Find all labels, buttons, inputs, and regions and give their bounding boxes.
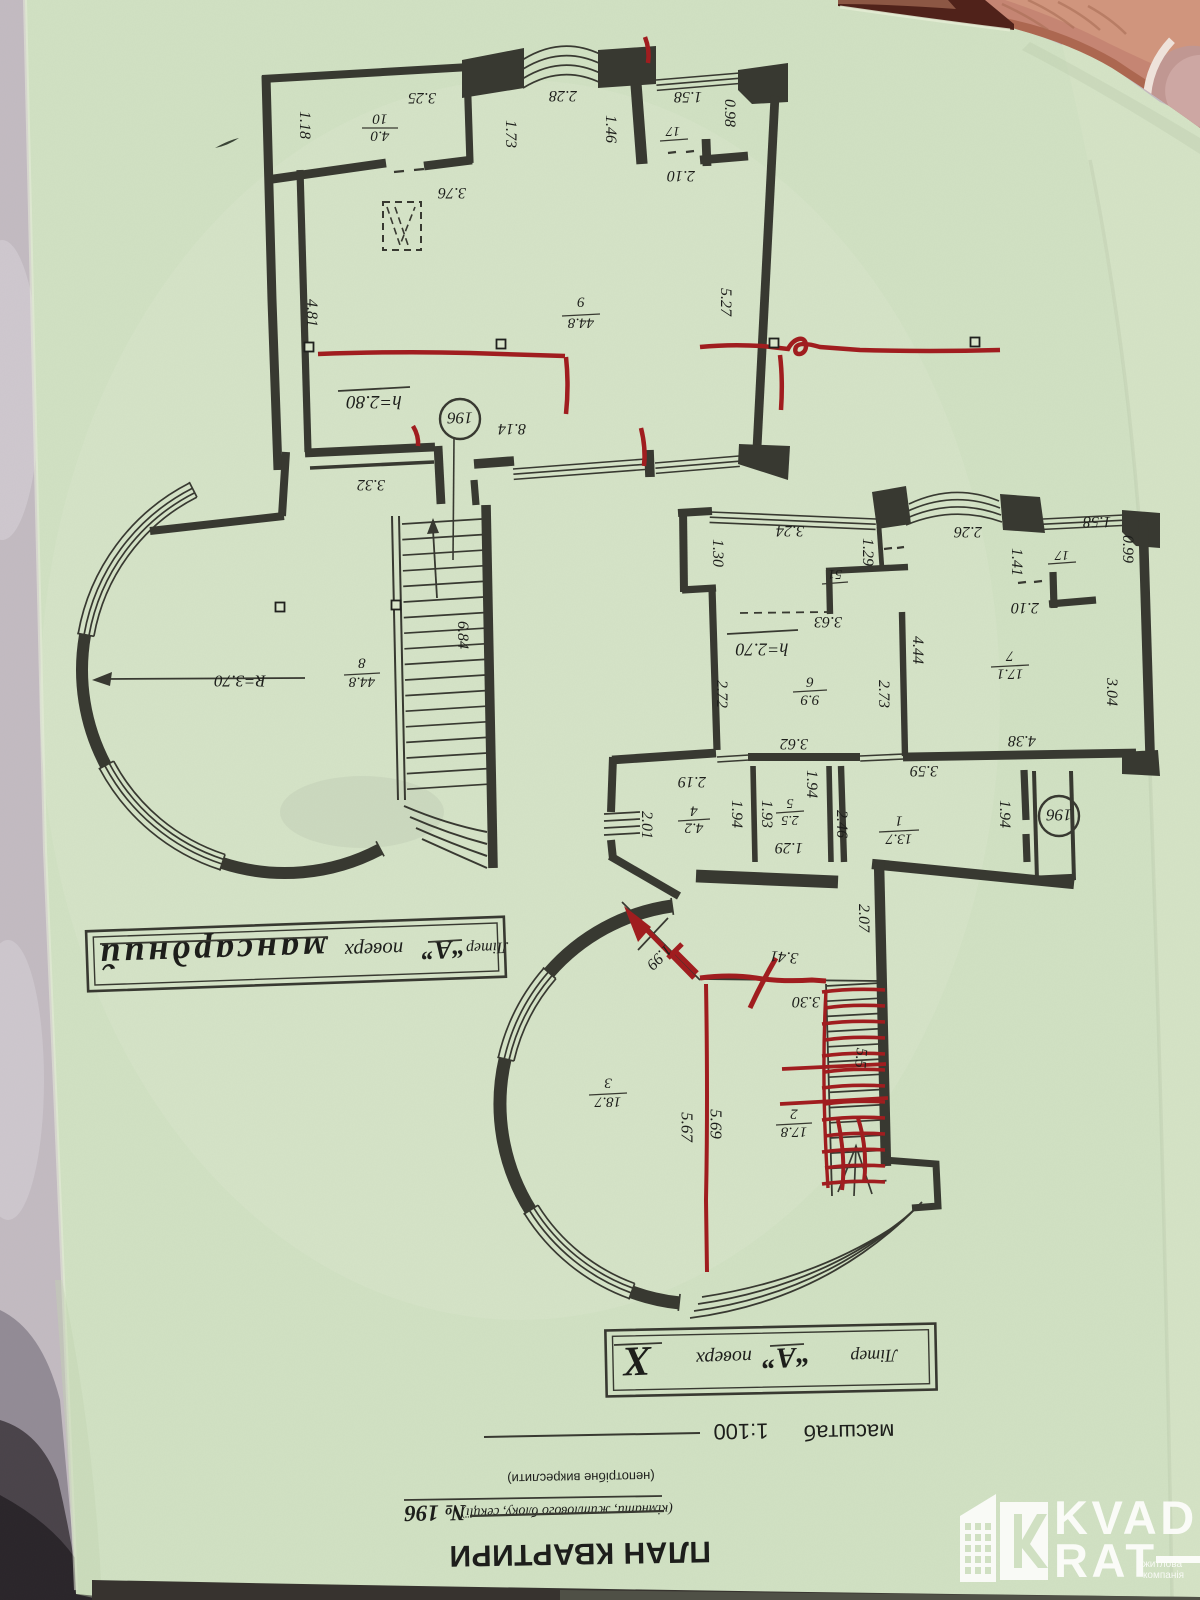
svg-text:17: 17 (665, 123, 680, 138)
svg-text:поверх: поверх (695, 1346, 752, 1370)
svg-text:17: 17 (1054, 547, 1069, 562)
svg-text:5.69: 5.69 (707, 1109, 726, 1139)
svg-text:1.58: 1.58 (674, 88, 702, 105)
svg-text:h=2.80: h=2.80 (346, 391, 402, 412)
svg-text:8.14: 8.14 (498, 420, 526, 437)
svg-text:№ 196: № 196 (404, 1500, 467, 1526)
svg-text:4.0: 4.0 (370, 127, 389, 143)
svg-text:2.5: 2.5 (781, 812, 799, 827)
svg-text:3.63: 3.63 (814, 613, 843, 630)
svg-text:Літер: Літер (466, 938, 510, 956)
svg-text:(непотрібне викреслити): (непотрібне викреслити) (507, 1469, 655, 1487)
svg-text:1: 1 (895, 812, 903, 828)
svg-text:1.18: 1.18 (296, 111, 313, 139)
svg-text:9: 9 (577, 293, 585, 309)
svg-text:44.8: 44.8 (567, 314, 594, 330)
svg-text:6: 6 (806, 673, 814, 689)
svg-text:1.94: 1.94 (728, 800, 745, 828)
svg-text:1.94: 1.94 (996, 800, 1013, 828)
svg-text:ПЛАН КВАРТИРИ: ПЛАН КВАРТИРИ (449, 1535, 712, 1573)
svg-text:3: 3 (604, 1074, 613, 1090)
svg-text:196: 196 (1046, 806, 1072, 825)
svg-text:3.30: 3.30 (792, 993, 821, 1010)
svg-text:R=3.70: R=3.70 (214, 672, 267, 691)
svg-text:компанія: компанія (1143, 1570, 1184, 1581)
svg-text:3.59: 3.59 (910, 762, 939, 779)
svg-text:13.7: 13.7 (884, 830, 912, 846)
svg-text:3.32: 3.32 (357, 476, 386, 493)
svg-text:4.38: 4.38 (1008, 732, 1036, 749)
svg-text:10: 10 (372, 110, 388, 126)
svg-text:1.93: 1.93 (758, 800, 775, 828)
svg-text:4.44: 4.44 (909, 636, 926, 664)
svg-text:1.58: 1.58 (1083, 513, 1111, 530)
svg-text:2: 2 (790, 1105, 798, 1121)
svg-text:3.04: 3.04 (1103, 677, 1120, 706)
svg-text:17.8: 17.8 (780, 1123, 807, 1139)
svg-text:h=2.70: h=2.70 (736, 639, 789, 659)
svg-text:масштаб: масштаб (803, 1419, 894, 1446)
svg-text:17.1: 17.1 (997, 665, 1023, 681)
svg-text:196: 196 (447, 409, 473, 428)
svg-text:4.2: 4.2 (684, 819, 703, 835)
svg-text:мансардний: мансардний (96, 929, 330, 977)
svg-text:5.67: 5.67 (678, 1112, 697, 1143)
svg-text:житлова: житлова (1143, 1559, 1182, 1570)
svg-text:Літер: Літер (850, 1345, 899, 1367)
svg-text:9.9: 9.9 (800, 691, 819, 707)
svg-text:поверх: поверх (343, 937, 403, 963)
svg-text:1.41: 1.41 (1008, 548, 1025, 576)
svg-text:2.72: 2.72 (713, 680, 730, 708)
svg-text:3.41: 3.41 (769, 947, 799, 966)
svg-text:5.5: 5.5 (851, 1047, 870, 1068)
svg-text:2.07: 2.07 (855, 904, 872, 933)
svg-text:3.76: 3.76 (438, 184, 467, 201)
svg-text:1.46: 1.46 (602, 115, 619, 143)
svg-text:44.8: 44.8 (348, 673, 375, 689)
svg-text:“А”: “А” (421, 935, 465, 965)
svg-text:3.24: 3.24 (776, 522, 805, 539)
svg-text:0.99: 0.99 (1119, 535, 1136, 563)
svg-text:4: 4 (690, 802, 698, 818)
svg-text:51: 51 (828, 566, 842, 581)
svg-text:2.01: 2.01 (638, 811, 655, 839)
svg-text:1.30: 1.30 (709, 539, 726, 567)
svg-text:0.98: 0.98 (721, 99, 738, 127)
svg-text:1.73: 1.73 (502, 120, 519, 148)
svg-text:3.62: 3.62 (780, 735, 809, 752)
svg-text:1.94: 1.94 (803, 770, 820, 798)
svg-text:2.26: 2.26 (954, 523, 982, 540)
svg-text:2.10: 2.10 (1011, 599, 1039, 616)
svg-text:2.73: 2.73 (875, 680, 892, 708)
svg-text:8: 8 (358, 654, 366, 670)
svg-text:4.81: 4.81 (303, 299, 320, 327)
svg-text:1.29: 1.29 (775, 839, 803, 856)
svg-text:18.7: 18.7 (593, 1093, 621, 1109)
svg-text:2.10: 2.10 (667, 167, 695, 184)
svg-text:2.19: 2.19 (678, 773, 706, 790)
svg-text:5.27: 5.27 (717, 288, 734, 317)
svg-text:5: 5 (787, 795, 794, 810)
svg-text:3.25: 3.25 (408, 89, 437, 106)
svg-text:2.28: 2.28 (549, 87, 577, 104)
svg-text:1:100: 1:100 (713, 1418, 768, 1444)
svg-text:6.84: 6.84 (454, 621, 471, 649)
svg-text:2.46: 2.46 (833, 810, 850, 838)
svg-text:1.29: 1.29 (859, 538, 876, 566)
